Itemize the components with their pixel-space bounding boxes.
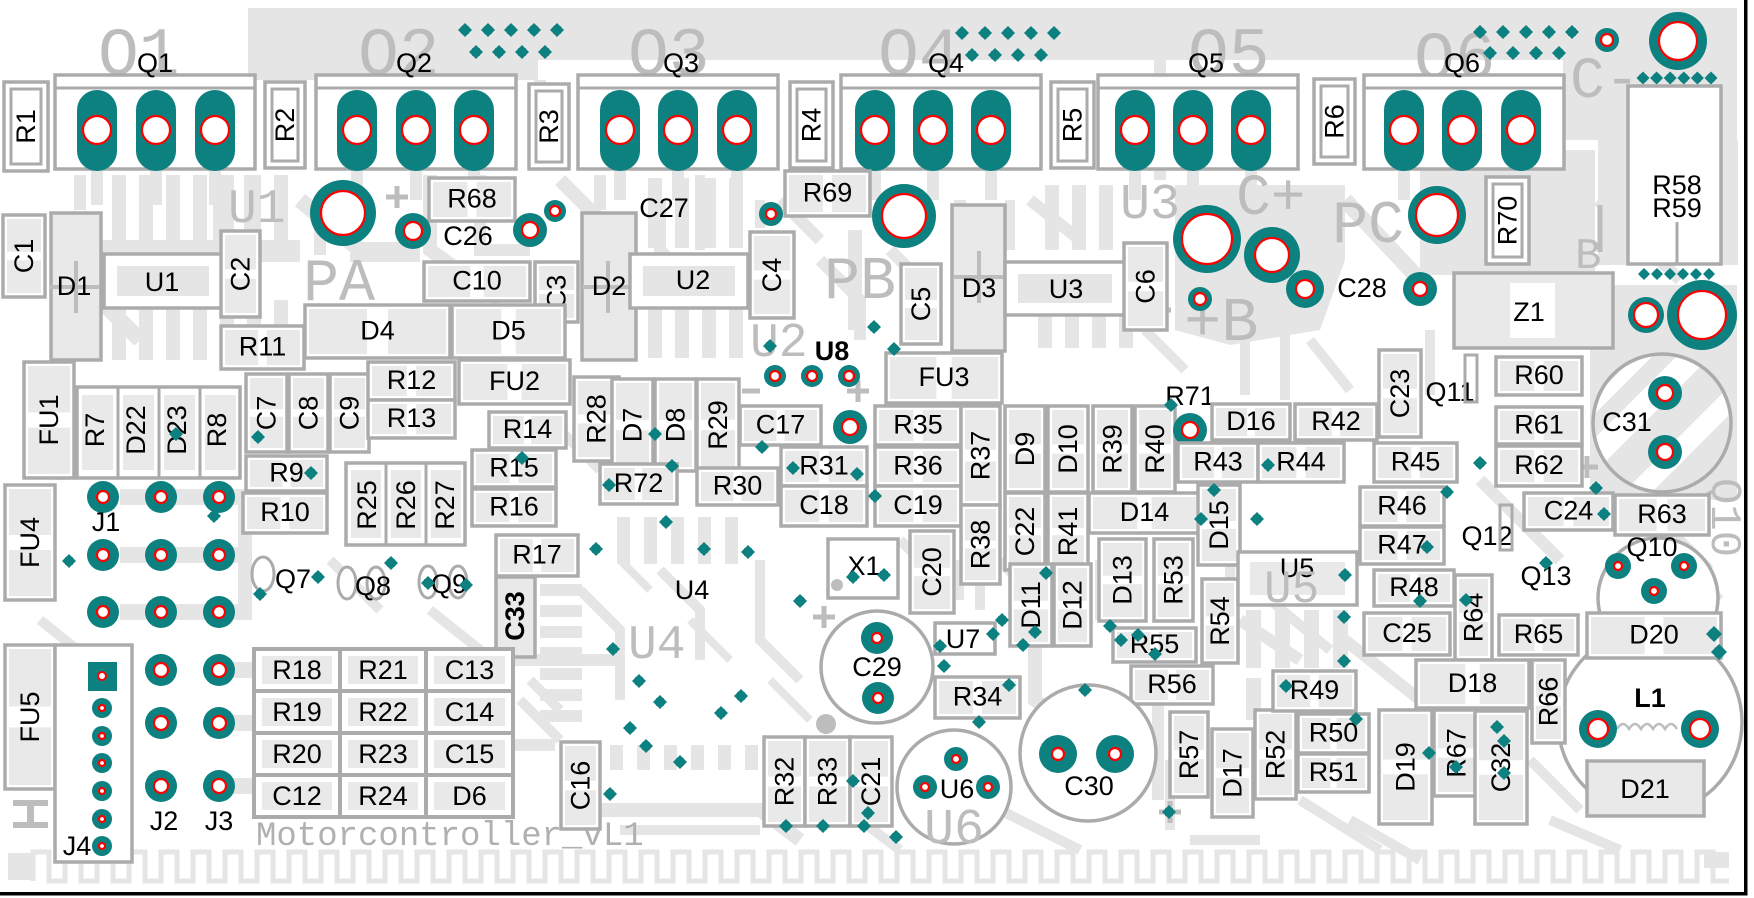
svg-text:J3: J3 (205, 806, 234, 836)
svg-text:R17: R17 (512, 540, 562, 570)
svg-text:U6: U6 (940, 774, 975, 804)
svg-text:R21: R21 (358, 655, 408, 685)
svg-text:R47: R47 (1377, 530, 1427, 560)
svg-text:R70: R70 (1493, 196, 1523, 246)
svg-text:Q6: Q6 (1444, 48, 1480, 78)
svg-text:R23: R23 (358, 739, 408, 769)
svg-text:R59: R59 (1652, 193, 1702, 223)
svg-text:R48: R48 (1389, 572, 1439, 602)
svg-text:U3: U3 (1120, 177, 1180, 234)
svg-text:D11: D11 (1016, 581, 1046, 629)
svg-text:R54: R54 (1205, 596, 1235, 646)
svg-text:R46: R46 (1377, 491, 1427, 521)
svg-text:U2: U2 (676, 265, 711, 295)
svg-text:U2: U2 (750, 317, 808, 371)
svg-text:R8: R8 (202, 413, 232, 448)
svg-text:C30: C30 (1064, 771, 1114, 801)
svg-text:C1: C1 (9, 239, 39, 274)
svg-text:R29: R29 (703, 400, 733, 450)
svg-text:R35: R35 (893, 410, 943, 440)
svg-text:U5: U5 (1264, 564, 1319, 616)
svg-text:R1: R1 (11, 109, 41, 144)
svg-text:C10: C10 (452, 266, 502, 296)
svg-text:R30: R30 (713, 471, 763, 501)
svg-text:R53: R53 (1159, 555, 1189, 605)
svg-text:R60: R60 (1514, 360, 1564, 390)
svg-text:D2: D2 (592, 271, 627, 301)
svg-text:R6: R6 (1320, 104, 1350, 139)
svg-text:PB: PB (824, 249, 896, 317)
svg-text:R15: R15 (489, 453, 539, 483)
svg-text:R13: R13 (387, 403, 437, 433)
svg-text:C33: C33 (500, 591, 530, 641)
svg-text:R42: R42 (1311, 406, 1361, 436)
svg-text:R63: R63 (1637, 499, 1687, 529)
svg-text:D17: D17 (1218, 748, 1248, 798)
svg-text:C24: C24 (1544, 496, 1594, 526)
svg-text:D8: D8 (661, 408, 691, 443)
svg-text:Z1: Z1 (1513, 297, 1545, 327)
svg-text:R40: R40 (1140, 424, 1170, 474)
svg-text:C23: C23 (1385, 369, 1415, 419)
svg-text:C20: C20 (917, 547, 947, 597)
svg-text:D12: D12 (1058, 580, 1088, 630)
svg-text:U6: U6 (924, 802, 984, 859)
svg-text:C15: C15 (445, 739, 495, 769)
svg-text:U4: U4 (628, 619, 686, 673)
svg-text:J4: J4 (63, 831, 92, 861)
svg-text:R43: R43 (1193, 447, 1243, 477)
svg-text:R2: R2 (270, 108, 300, 143)
svg-text:Q4: Q4 (928, 48, 964, 78)
svg-text:R41: R41 (1053, 507, 1083, 557)
svg-text:R9: R9 (269, 458, 304, 488)
svg-text:D19: D19 (1391, 742, 1421, 792)
svg-text:C5: C5 (906, 287, 936, 322)
svg-text:U7: U7 (946, 624, 981, 654)
svg-text:R66: R66 (1534, 677, 1564, 727)
svg-text:R22: R22 (358, 697, 408, 727)
svg-text:Q3: Q3 (663, 48, 699, 78)
svg-text:R72: R72 (614, 468, 664, 498)
svg-text:D20: D20 (1629, 620, 1679, 650)
svg-text:C16: C16 (566, 761, 596, 811)
svg-text:PC: PC (1332, 193, 1404, 261)
svg-text:U8: U8 (815, 336, 850, 366)
svg-text:Q1: Q1 (137, 48, 173, 78)
svg-text:D3: D3 (962, 273, 997, 303)
svg-text:R10: R10 (260, 497, 310, 527)
svg-text:C27: C27 (639, 193, 689, 223)
svg-text:C31: C31 (1602, 407, 1652, 437)
svg-text:C25: C25 (1382, 618, 1432, 648)
svg-text:FU5: FU5 (15, 691, 45, 742)
svg-text:R16: R16 (489, 492, 539, 522)
svg-text:C28: C28 (1337, 273, 1387, 303)
svg-text:C12: C12 (272, 781, 322, 811)
svg-text:FU3: FU3 (918, 362, 969, 392)
svg-text:D15: D15 (1204, 500, 1234, 550)
svg-text:U1: U1 (228, 183, 286, 237)
svg-text:R62: R62 (1514, 450, 1564, 480)
svg-text:L1: L1 (1634, 683, 1666, 713)
svg-text:Q7: Q7 (275, 564, 311, 594)
svg-text:C21: C21 (856, 757, 886, 807)
svg-text:D18: D18 (1448, 668, 1498, 698)
svg-text:R37: R37 (966, 431, 996, 481)
svg-text:U3: U3 (1049, 274, 1084, 304)
svg-text:R38: R38 (966, 520, 996, 570)
svg-text:R45: R45 (1391, 447, 1441, 477)
svg-text:Q5: Q5 (1188, 48, 1224, 78)
svg-text:R32: R32 (770, 757, 800, 807)
svg-text:C14: C14 (445, 697, 495, 727)
svg-text:C32: C32 (1486, 743, 1516, 793)
svg-text:U1: U1 (145, 267, 180, 297)
svg-text:J1: J1 (92, 507, 121, 537)
svg-text:D22: D22 (121, 405, 151, 455)
svg-text:C18: C18 (799, 490, 849, 520)
svg-text:R52: R52 (1261, 730, 1291, 780)
svg-text:R50: R50 (1309, 718, 1359, 748)
svg-text:R68: R68 (447, 184, 497, 214)
svg-text:R57: R57 (1174, 730, 1204, 780)
svg-text:C29: C29 (852, 652, 902, 682)
svg-text:D14: D14 (1120, 497, 1170, 527)
svg-text:Q2: Q2 (396, 48, 432, 78)
svg-text:R12: R12 (387, 365, 437, 395)
svg-text:R11: R11 (239, 332, 287, 362)
svg-text:C2: C2 (226, 257, 256, 292)
svg-text:D4: D4 (360, 316, 395, 346)
svg-text:R24: R24 (358, 781, 408, 811)
svg-text:FU2: FU2 (489, 366, 540, 396)
svg-text:R14: R14 (503, 414, 553, 444)
svg-text:C22: C22 (1010, 507, 1040, 557)
svg-text:D10: D10 (1053, 424, 1083, 474)
svg-text:FU4: FU4 (15, 517, 45, 568)
svg-text:C+: C+ (1236, 167, 1306, 232)
svg-text:R20: R20 (272, 739, 322, 769)
svg-text:R65: R65 (1514, 619, 1564, 649)
svg-text:D7: D7 (618, 408, 648, 443)
svg-text:D9: D9 (1010, 432, 1040, 467)
svg-text:C7: C7 (252, 396, 282, 431)
svg-text:R49: R49 (1290, 675, 1340, 705)
svg-text:R28: R28 (582, 394, 612, 444)
svg-text:Q8: Q8 (355, 571, 391, 601)
svg-text:U4: U4 (675, 575, 710, 605)
svg-text:R34: R34 (953, 682, 1003, 712)
svg-text:D1: D1 (57, 271, 92, 301)
svg-text:R26: R26 (391, 480, 421, 530)
svg-text:FU1: FU1 (34, 394, 64, 445)
svg-text:R19: R19 (272, 697, 322, 727)
svg-text:R61: R61 (1514, 410, 1564, 440)
svg-text:J2: J2 (150, 806, 179, 836)
svg-text:R7: R7 (80, 413, 110, 448)
svg-text:R39: R39 (1098, 424, 1128, 474)
svg-text:R5: R5 (1058, 108, 1088, 143)
svg-text:Q12: Q12 (1461, 521, 1512, 551)
svg-text:C4: C4 (757, 258, 787, 293)
svg-text:C26: C26 (443, 221, 493, 251)
svg-text:R69: R69 (803, 178, 853, 208)
svg-text:D6: D6 (452, 781, 487, 811)
svg-text:C9: C9 (335, 396, 365, 431)
svg-text:D16: D16 (1226, 406, 1276, 436)
svg-text:C6: C6 (1131, 269, 1161, 304)
svg-text:R4: R4 (797, 108, 827, 143)
svg-text:D5: D5 (491, 316, 526, 346)
svg-text:D13: D13 (1108, 555, 1138, 605)
svg-text:R25: R25 (352, 480, 382, 530)
svg-text:C8: C8 (294, 396, 324, 431)
svg-text:R27: R27 (430, 480, 460, 530)
svg-text:R33: R33 (813, 757, 843, 807)
svg-text:C13: C13 (445, 655, 495, 685)
svg-text:R56: R56 (1147, 669, 1197, 699)
svg-text:D21: D21 (1620, 774, 1670, 804)
svg-text:C17: C17 (756, 410, 806, 440)
svg-text:R44: R44 (1276, 447, 1326, 477)
svg-text:R18: R18 (272, 655, 322, 685)
svg-text:C19: C19 (893, 490, 943, 520)
svg-text:R3: R3 (534, 109, 564, 144)
svg-text:Q10: Q10 (1626, 532, 1677, 562)
svg-text:R31: R31 (799, 451, 849, 481)
svg-text:R36: R36 (893, 451, 943, 481)
svg-text:R51: R51 (1309, 757, 1359, 787)
